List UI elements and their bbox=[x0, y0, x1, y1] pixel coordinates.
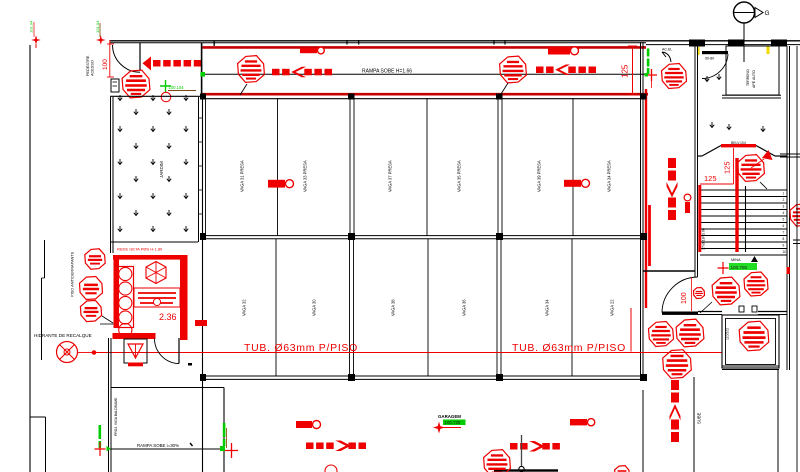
svg-text:RAMPA SOBE H=1.66: RAMPA SOBE H=1.66 bbox=[362, 69, 412, 75]
svg-text:HIDRANTE DE RECALQUE: HIDRANTE DE RECALQUE bbox=[34, 333, 92, 338]
svg-text:5: 5 bbox=[783, 218, 785, 222]
svg-text:GARAGEM: GARAGEM bbox=[438, 414, 461, 419]
svg-text:100.104: 100.104 bbox=[169, 85, 185, 90]
svg-text:8: 8 bbox=[783, 237, 785, 241]
svg-text:6: 6 bbox=[783, 224, 785, 228]
svg-text:REDE GETA PØS H-1.80: REDE GETA PØS H-1.80 bbox=[117, 247, 163, 252]
svg-text:ACESSO: ACESSO bbox=[91, 60, 95, 76]
svg-text:VAGA 34 PRESA: VAGA 34 PRESA bbox=[607, 160, 612, 192]
svg-text:APÉ AUTO: APÉ AUTO bbox=[751, 70, 756, 88]
svg-text:PROJ. VIGA BALDRAME: PROJ. VIGA BALDRAME bbox=[114, 397, 118, 436]
svg-text:G: G bbox=[765, 10, 770, 17]
svg-text:7: 7 bbox=[783, 231, 785, 235]
svg-text:VAGA 35 PRESA: VAGA 35 PRESA bbox=[457, 160, 462, 192]
svg-text:VAGA 34: VAGA 34 bbox=[545, 299, 550, 316]
svg-text:PEDESTRE: PEDESTRE bbox=[86, 55, 90, 76]
svg-text:90-80: 90-80 bbox=[705, 57, 714, 61]
svg-text:VAGA 36: VAGA 36 bbox=[462, 299, 467, 316]
svg-text:2: 2 bbox=[783, 198, 785, 202]
svg-text:1: 1 bbox=[783, 192, 785, 196]
svg-text:VAGA 37 PRESA: VAGA 37 PRESA bbox=[388, 160, 393, 192]
svg-text:VAGA 22: VAGA 22 bbox=[610, 299, 615, 316]
svg-text:VAGA 30: VAGA 30 bbox=[312, 299, 317, 316]
svg-text:MINA: MINA bbox=[731, 258, 741, 262]
svg-text:TUB. Ø63mm P/PISO: TUB. Ø63mm P/PISO bbox=[512, 342, 626, 354]
svg-text:110/202: 110/202 bbox=[726, 328, 730, 340]
svg-text:125: 125 bbox=[704, 174, 717, 183]
svg-text:PISO ANTIDERRAPANTE: PISO ANTIDERRAPANTE bbox=[70, 251, 75, 297]
svg-text:100: 100 bbox=[102, 59, 109, 70]
svg-text:9: 9 bbox=[783, 244, 785, 248]
svg-text:VAGA 33 PRESA: VAGA 33 PRESA bbox=[303, 160, 308, 192]
svg-text:100.750: 100.750 bbox=[731, 265, 748, 270]
svg-text:TUB. Ø63mm P/PISO: TUB. Ø63mm P/PISO bbox=[244, 342, 358, 354]
svg-text:TERRENO: TERRENO bbox=[746, 69, 750, 86]
svg-text:101.04: 101.04 bbox=[95, 20, 100, 33]
svg-text:SUBE: SUBE bbox=[697, 412, 702, 424]
svg-text:AC.EL: AC.EL bbox=[662, 48, 672, 52]
svg-text:JARDIM: JARDIM bbox=[159, 161, 164, 178]
svg-text:17x0.18=3.06: 17x0.18=3.06 bbox=[702, 228, 706, 250]
svg-text:10: 10 bbox=[783, 250, 787, 254]
svg-text:100.730: 100.730 bbox=[445, 420, 461, 425]
svg-text:125: 125 bbox=[621, 64, 630, 78]
svg-text:4: 4 bbox=[783, 211, 785, 215]
svg-text:100: 100 bbox=[681, 292, 688, 304]
svg-text:VAGA 31 PRESA: VAGA 31 PRESA bbox=[240, 160, 245, 192]
svg-text:RAMPA SOBE i=30%: RAMPA SOBE i=30% bbox=[137, 443, 179, 448]
svg-text:VAGA 38: VAGA 38 bbox=[391, 299, 396, 316]
svg-text:VAGA 32: VAGA 32 bbox=[242, 299, 247, 316]
svg-text:101.04: 101.04 bbox=[29, 20, 34, 33]
svg-text:2.36: 2.36 bbox=[159, 312, 177, 322]
svg-text:VAGA 39 PRESA: VAGA 39 PRESA bbox=[537, 160, 542, 192]
svg-text:3: 3 bbox=[783, 205, 785, 209]
svg-text:125: 125 bbox=[723, 161, 732, 174]
